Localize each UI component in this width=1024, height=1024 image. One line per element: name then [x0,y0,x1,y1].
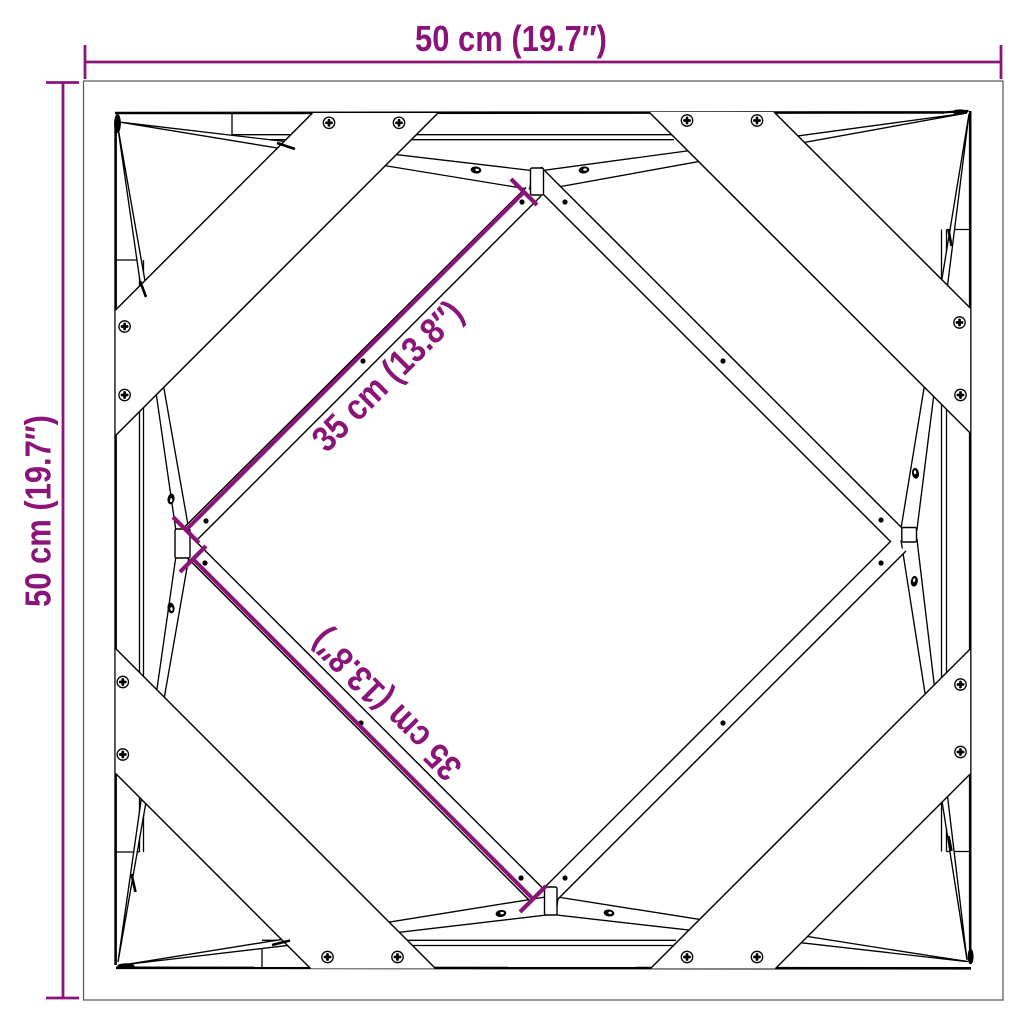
svg-text:50 cm (19.7″): 50 cm (19.7″) [18,415,59,607]
svg-text:50 cm (19.7″): 50 cm (19.7″) [415,18,607,59]
